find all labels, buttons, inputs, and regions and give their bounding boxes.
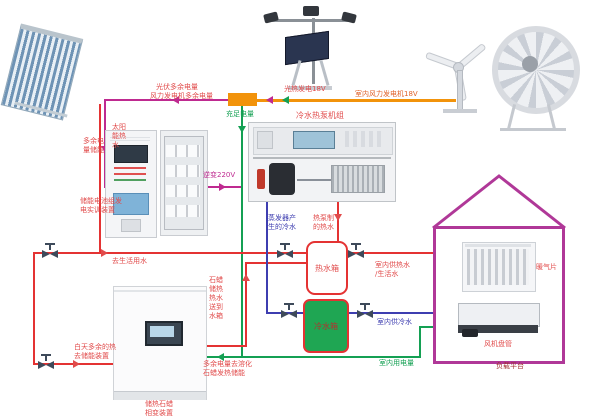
hp-indicators: [345, 131, 385, 147]
battery-shelf: [166, 165, 200, 177]
label-pv-surplus: 光伏多余电量: [156, 83, 198, 92]
label-battery-device: 储能电池组发 电实训装置: [80, 197, 122, 215]
hot-tank-label: 热水箱: [315, 263, 339, 274]
turbine-pole: [457, 70, 463, 112]
valve-icon: [277, 243, 293, 258]
label-heat-pump-unit: 冷水热泵机组: [296, 111, 344, 121]
pv-tracker: [255, 4, 365, 96]
cabinet-small-box: [121, 219, 141, 232]
label-hp-hot-water: 热泵制 的热水: [313, 214, 334, 232]
cold-tank-label: 冷水箱: [314, 321, 338, 332]
label-evap-cold-water: 蒸发器产 生的冷水: [268, 214, 296, 232]
valve-icon: [281, 303, 297, 318]
fan-coil-motor: [462, 329, 478, 337]
system-diagram: 热水箱 冷水箱 光伏多余电量 风力发电机多余电量 充足电量 光热发电18V 室内…: [0, 0, 600, 419]
hot-water-tank: 热水箱: [306, 241, 348, 295]
label-surplus-melt-paraffin: 多余电量去溶化 石蜡发热储能: [203, 360, 252, 378]
hp-red-vessel: [257, 169, 265, 189]
arrow-up-icon: [242, 274, 250, 281]
fan-hub: [522, 56, 538, 72]
battery-shelf: [166, 205, 200, 217]
label-load-platform: 负载平台: [496, 362, 524, 371]
label-day-surplus-heat: 白天多余的热 去储能装置: [74, 343, 116, 361]
valve-icon: [38, 354, 54, 369]
radiator-fins: [467, 249, 529, 285]
collector-tubes: [1, 24, 83, 121]
lamp-icon: [303, 6, 319, 16]
indicator-row: [114, 173, 146, 175]
label-radiator: 暖气片: [536, 263, 557, 272]
label-line: 多余电量去溶化: [203, 360, 252, 369]
label-inverter: 逆变220V: [203, 171, 235, 180]
label-indoor-cold-supply: 室内供冷水: [377, 318, 412, 327]
label-line: 热泵制: [313, 214, 334, 223]
solar-collector: [2, 20, 82, 120]
fan-base: [500, 128, 566, 131]
fan-coil-body: [458, 303, 540, 327]
hp-pipe: [297, 179, 331, 181]
electric-main-drop: [241, 106, 243, 356]
fan-leg: [507, 104, 516, 130]
label-sufficient-power: 充足电量: [226, 110, 254, 119]
label-pv-generation: 光热发电18V: [284, 85, 326, 94]
radiator: [462, 242, 536, 292]
wind-tunnel-fan: [480, 22, 588, 130]
arrow-left-icon: [266, 96, 273, 104]
label-line: 石蜡发热储能: [203, 369, 252, 378]
cabinet-trim: [114, 290, 206, 292]
arrow-down-icon: [334, 214, 342, 221]
cabinet-base: [114, 391, 206, 400]
label-line: 的热水: [313, 223, 334, 232]
hp-shelf: [253, 157, 391, 159]
electric-riser: [419, 326, 421, 358]
label-line: 蒸发器产: [268, 214, 296, 223]
electric-bottom-line: [204, 356, 421, 358]
valve-icon: [357, 303, 373, 318]
label-solar-hot-water: 太阳能热水: [112, 123, 128, 150]
arrow-down-icon: [238, 126, 246, 133]
arrow-right-icon: [101, 249, 108, 257]
cold-water-tank: 冷水箱: [303, 299, 349, 353]
indicator-row: [114, 167, 146, 169]
battery-shelf: [166, 185, 200, 197]
label-line: 电实训装置: [80, 206, 122, 215]
valve-icon: [348, 243, 364, 258]
label-line: 相变装置: [145, 409, 173, 418]
valve-icon: [42, 243, 58, 258]
solar-hot-line: [99, 104, 101, 254]
arrow-left-icon: [282, 96, 289, 104]
radiator-header: [465, 244, 531, 247]
label-indoor-hot-supply: 室内供热水 /生活水: [375, 261, 410, 279]
label-line: 生的冷水: [268, 223, 296, 232]
screen-display: [150, 326, 174, 337]
label-phase-change-device: 储热石蜡 相变装置: [145, 400, 173, 418]
indicator-row: [114, 179, 146, 181]
hp-condenser: [331, 165, 385, 193]
hp-left-box: [257, 131, 273, 149]
fan-coil-unit: [458, 303, 538, 337]
label-line: 室内供热水: [375, 261, 410, 270]
label-indoor-wind-generator: 室内风力发电机18V: [355, 90, 418, 99]
heat-pump-bench: [248, 122, 396, 202]
phase-change-cabinet: [113, 286, 207, 400]
paraffin-to-tank-line: [245, 262, 307, 264]
cabinet-screen: [145, 321, 183, 346]
battery-rack-cabinet: [160, 130, 208, 236]
label-line: /生活水: [375, 270, 410, 279]
label-line: 去储能装置: [74, 352, 116, 361]
label-fan-coil: 风机盘管: [484, 340, 512, 349]
paraffin-out-line: [205, 345, 247, 347]
battery-shelf: [166, 145, 200, 157]
surplus-heat-drop: [33, 252, 35, 364]
arrow-right-icon: [73, 360, 80, 368]
label-paraffin-to-tank: 石蜡储热热水送到水箱: [209, 276, 225, 321]
turbine-base: [443, 109, 477, 113]
label-to-domestic-water: 去生活用水: [112, 257, 147, 266]
label-line: 白天多余的热: [74, 343, 116, 352]
tracker-leg: [319, 60, 329, 86]
label-wind-surplus: 风力发电机多余电量: [150, 92, 213, 101]
label-indoor-power-use: 室内用电量: [379, 359, 414, 368]
label-surplus-storage: 多余电量储能: [83, 137, 106, 155]
hp-compressor: [269, 163, 295, 195]
label-line: 储能电池组发: [80, 197, 122, 206]
arrow-right-icon: [219, 183, 226, 191]
power-junction-box: [228, 93, 257, 106]
fan-rotor: [492, 26, 580, 114]
hp-screen: [293, 131, 335, 149]
label-line: 储热石蜡: [145, 400, 173, 409]
